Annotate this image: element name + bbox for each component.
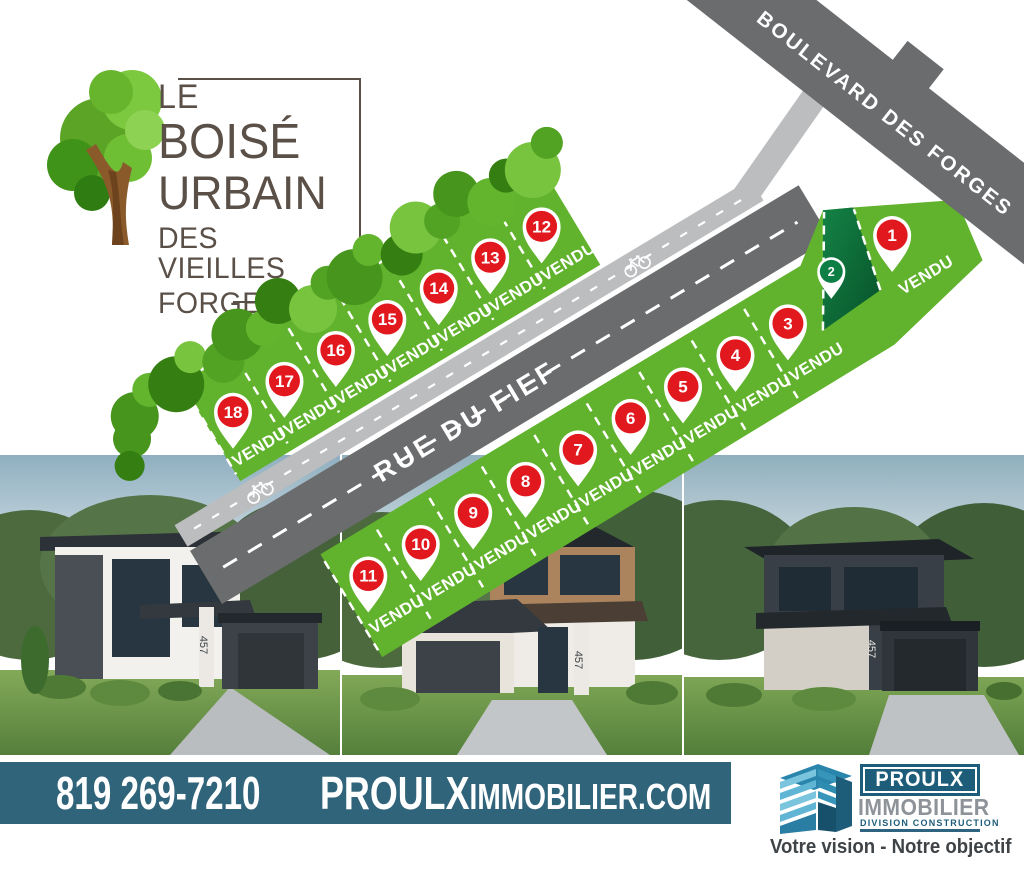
company-division: DIVISION CONSTRUCTION bbox=[860, 818, 980, 828]
site-plan-map: RUE DU FIEF11VENDU10VENDU9VENDU8VENDU7VE… bbox=[0, 0, 1024, 879]
company-logo-block: PROULX IMMOBILIER DIVISION CONSTRUCTION … bbox=[768, 752, 1018, 862]
lot-number: 14 bbox=[429, 279, 448, 298]
phone-number: 819 269-7210 bbox=[56, 766, 260, 820]
company-division-bar bbox=[860, 829, 980, 832]
flyer-canvas: LE BOISÉ URBAIN DES VIEILLES FORGES bbox=[0, 0, 1024, 879]
bike-path-crossing bbox=[719, 96, 841, 197]
website-rest: IMMOBILIER.COM bbox=[469, 776, 711, 818]
lot-number: 3 bbox=[783, 314, 792, 333]
lot-number: 8 bbox=[521, 472, 530, 491]
lot-number: 16 bbox=[326, 341, 345, 360]
lot-number: 5 bbox=[678, 377, 687, 396]
lot-number: 15 bbox=[378, 310, 397, 329]
company-tagline: Votre vision - Notre objectif bbox=[770, 836, 993, 859]
website-main: PROULX bbox=[320, 766, 470, 820]
lot-number: 4 bbox=[731, 346, 741, 365]
lot-number: 6 bbox=[626, 409, 635, 428]
lot-number: 13 bbox=[481, 248, 500, 267]
lot-number: 18 bbox=[224, 403, 243, 422]
lot-number: 11 bbox=[359, 566, 377, 585]
website-url: PROULX IMMOBILIER.COM bbox=[320, 766, 711, 820]
lot-number: 2 bbox=[828, 265, 835, 279]
lot-number: 10 bbox=[411, 535, 430, 554]
footer-contact-bar: 819 269-7210 PROULX IMMOBILIER.COM bbox=[0, 762, 731, 824]
lot-number: 12 bbox=[532, 217, 551, 236]
lot-number: 7 bbox=[573, 440, 582, 459]
company-name: PROULX bbox=[876, 768, 965, 792]
company-name-box: PROULX bbox=[860, 764, 980, 796]
company-building-icon bbox=[772, 756, 862, 836]
company-sector: IMMOBILIER bbox=[858, 794, 970, 821]
lot-number: 17 bbox=[275, 372, 294, 391]
lot-number: 9 bbox=[468, 503, 477, 522]
lot-number: 1 bbox=[887, 226, 896, 245]
